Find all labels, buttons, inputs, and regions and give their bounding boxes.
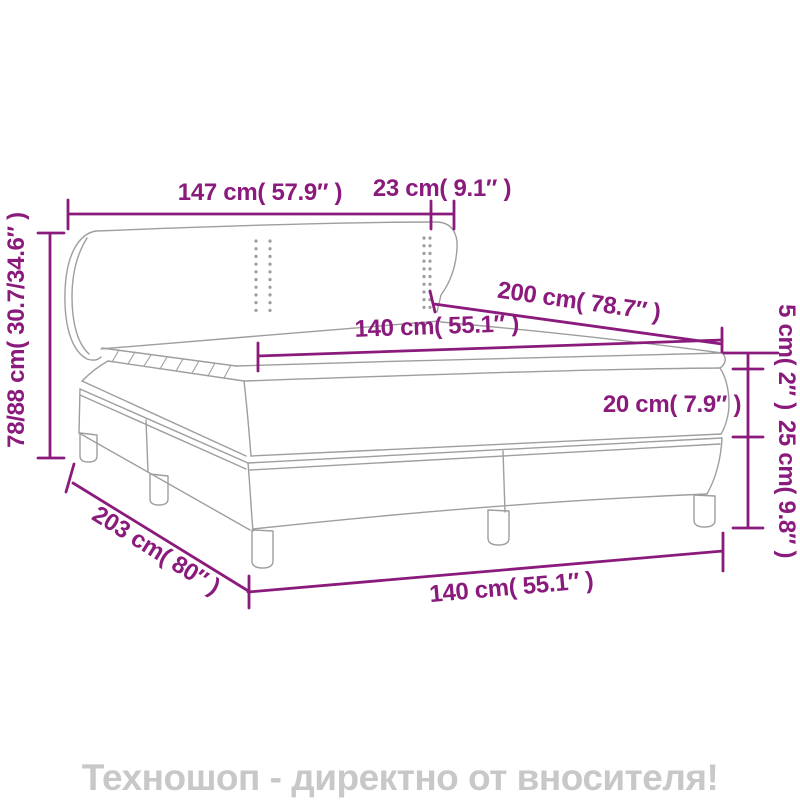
dim-label-topper-thickness: 5 cm( 2″ ) <box>773 304 800 410</box>
base-bottom-foot-edge <box>253 494 707 529</box>
topper-right-corner <box>720 353 725 368</box>
dim-label-mattress-width: 140 cm( 55.1″ ) <box>354 310 519 343</box>
dim-line-thickness-stack <box>724 353 778 528</box>
dim-label-bed-length: 200 cm( 78.7″ ) <box>496 277 663 327</box>
base-seam-left <box>146 420 148 472</box>
headboard-buttons-left <box>256 241 270 317</box>
base-seam-front <box>503 451 505 512</box>
mattress-foot-left-corner <box>244 381 251 456</box>
base-top-left-edge <box>80 389 248 469</box>
diagram-canvas: 147 cm( 57.9″ ) 23 cm( 9.1″ ) 78/88 cm( … <box>0 0 800 800</box>
bed-leg-front-right <box>694 495 715 527</box>
dim-label-headboard-wing-depth: 23 cm( 9.1″ ) <box>373 175 511 202</box>
bed-leg-front-middle <box>488 510 509 545</box>
bed-leg-back-left <box>80 433 97 462</box>
dimension-labels: 147 cm( 57.9″ ) 23 cm( 9.1″ ) 78/88 cm( … <box>3 175 800 608</box>
headboard-buttons-right <box>424 238 430 314</box>
mattress-bottom-foot-edge <box>251 434 721 456</box>
base-top-foot-edge <box>248 438 722 470</box>
bed-leg-front-left <box>252 530 273 568</box>
mattress-bottom-left-edge <box>82 381 246 456</box>
dim-label-mattress-thickness: 20 cm( 7.9″ ) <box>603 391 741 418</box>
mattress-left-back-edge <box>82 361 108 381</box>
base-right-edge <box>707 438 722 494</box>
dim-label-headboard-width: 147 cm( 57.9″ ) <box>178 179 342 206</box>
headboard-panel <box>97 222 457 312</box>
topper-bottom-foot-edge <box>244 368 720 381</box>
dim-label-base-height: 25 cm( 9.8″ ) <box>773 420 800 558</box>
base-foot-left-corner <box>248 463 253 531</box>
dim-label-frame-length: 203 cm( 80″ ) <box>87 501 224 601</box>
dim-line-overall-height <box>38 233 64 458</box>
headboard-wing <box>65 231 101 360</box>
product-dimension-diagram: 147 cm( 57.9″ ) 23 cm( 9.1″ ) 78/88 cm( … <box>0 0 800 800</box>
base-back-edge <box>79 389 80 433</box>
footer-text: Техношоп - директно от вносителя! <box>82 757 719 798</box>
dim-label-overall-height: 78/88 cm( 30.7/34.6″ ) <box>3 212 30 448</box>
